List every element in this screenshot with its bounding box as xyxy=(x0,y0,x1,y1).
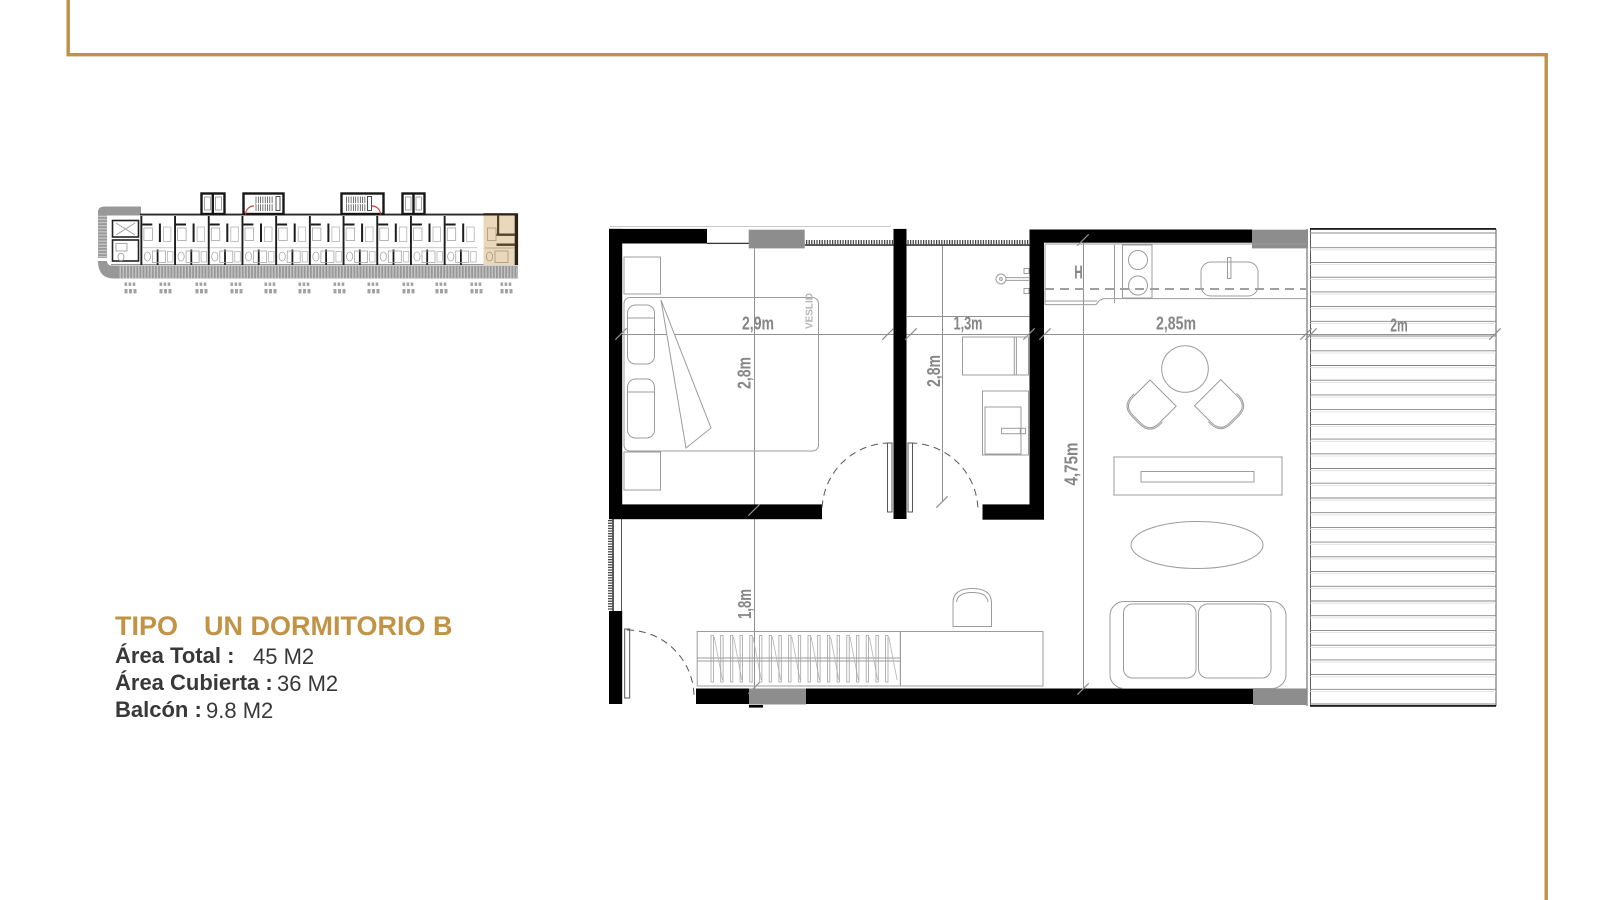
svg-text:4,75m: 4,75m xyxy=(1062,443,1082,486)
svg-text:2m: 2m xyxy=(1390,316,1408,336)
svg-text:VESLID: VESLID xyxy=(804,293,816,329)
svg-text:1,3m: 1,3m xyxy=(954,314,983,334)
svg-text:1,8m: 1,8m xyxy=(735,589,755,619)
svg-text:2,8m: 2,8m xyxy=(924,355,944,387)
svg-text:2,85m: 2,85m xyxy=(1156,314,1196,334)
svg-text:2,8m: 2,8m xyxy=(735,357,755,389)
svg-text:H: H xyxy=(1074,262,1083,283)
svg-text:2,9m: 2,9m xyxy=(742,314,774,334)
